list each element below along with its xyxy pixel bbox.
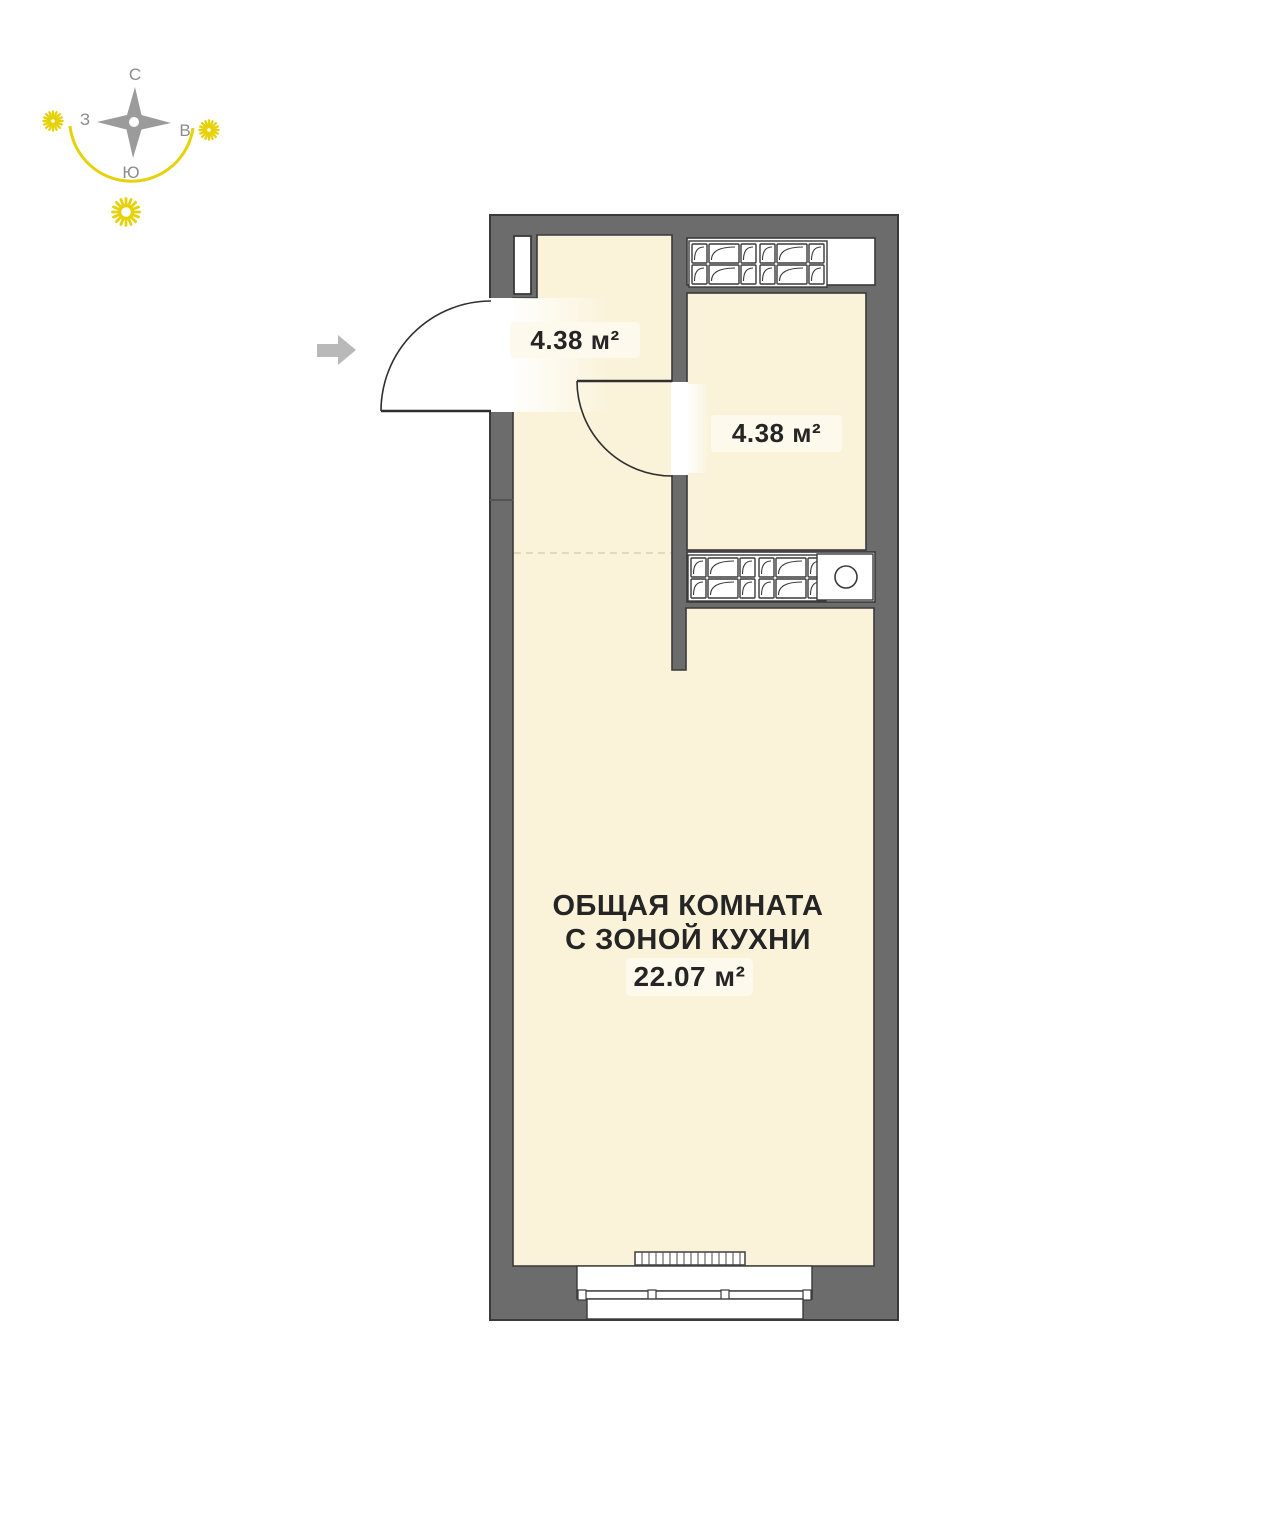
floorplan-page: С В Ю З — [0, 0, 1278, 1536]
bathroom-area-label: 4.38 м² — [711, 415, 842, 452]
compass-north-label: С — [129, 65, 141, 84]
vent-shaft-block-bottom — [688, 555, 826, 601]
living-room-name-line2: С ЗОНОЙ КУХНИ — [565, 924, 811, 956]
vent-shaft-block-top — [689, 241, 827, 287]
hallway-area-label: 4.38 м² — [510, 322, 640, 358]
floor-plan-drawing: С В Ю З — [0, 0, 1278, 1536]
living-room-name: ОБЩАЯ КОМНАТА С ЗОНОЙ КУХНИ — [528, 889, 848, 957]
pier-vent-slot — [514, 236, 531, 294]
radiator-icon — [635, 1252, 745, 1265]
bathroom-glow — [688, 384, 710, 473]
window — [577, 1266, 812, 1319]
entrance-arrow-icon — [317, 335, 356, 365]
entrance-door-swing-area — [381, 301, 491, 411]
sun-west-icon — [44, 112, 63, 131]
compass-west-label: З — [80, 110, 90, 129]
sink-icon — [835, 566, 857, 588]
compass-rose: С В Ю З — [44, 65, 219, 226]
living-room-area-label: 22.07 м² — [626, 958, 753, 996]
compass-east-label: В — [179, 121, 190, 140]
bathroom-opening — [671, 382, 688, 475]
living-room-name-line1: ОБЩАЯ КОМНАТА — [553, 890, 824, 922]
compass-south-label: Ю — [122, 163, 139, 182]
sun-south-icon — [113, 199, 140, 226]
window-frame — [577, 1291, 812, 1299]
window-sill-recess — [577, 1266, 812, 1291]
compass-star-center — [129, 117, 139, 127]
sun-east-icon — [200, 121, 219, 140]
window-outer-ledge — [587, 1299, 803, 1319]
